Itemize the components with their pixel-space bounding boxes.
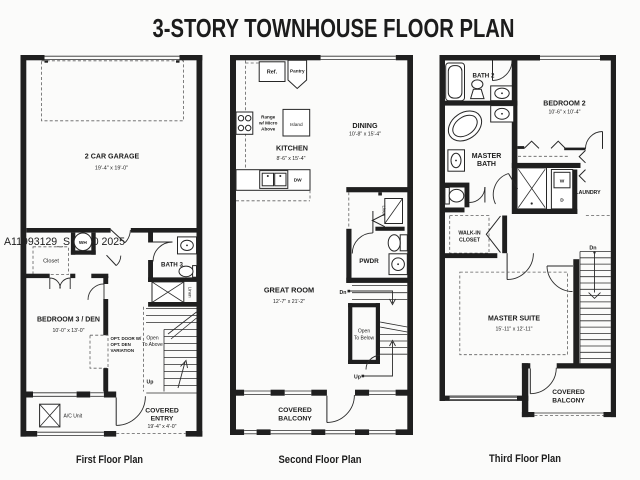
- svg-text:ENTRY: ENTRY: [151, 416, 174, 423]
- svg-text:Above: Above: [261, 127, 275, 132]
- svg-text:GREAT ROOM: GREAT ROOM: [264, 286, 314, 295]
- svg-text:CLOSET: CLOSET: [459, 238, 481, 244]
- svg-text:Open: Open: [358, 329, 370, 335]
- svg-text:KITCHEN: KITCHEN: [276, 144, 308, 153]
- svg-text:W: W: [560, 178, 565, 184]
- svg-text:MASTER: MASTER: [472, 153, 502, 160]
- svg-text:BALCONY: BALCONY: [278, 416, 312, 423]
- svg-text:To Below: To Below: [354, 336, 375, 342]
- svg-text:OPT. DEN: OPT. DEN: [111, 342, 131, 347]
- svg-text:8'-6" x 15'-4": 8'-6" x 15'-4": [276, 156, 305, 162]
- svg-text:12'-7" x 21'-2": 12'-7" x 21'-2": [273, 299, 305, 305]
- svg-text:PWDR: PWDR: [359, 258, 379, 265]
- svg-text:OPT. DOOR W/: OPT. DOOR W/: [111, 336, 143, 341]
- svg-text:VARIATION: VARIATION: [111, 348, 135, 353]
- svg-text:10'-8" x 15'-4": 10'-8" x 15'-4": [349, 132, 381, 138]
- svg-text:A/C Unit: A/C Unit: [64, 414, 83, 420]
- svg-text:First Floor Plan: First Floor Plan: [76, 454, 143, 466]
- svg-text:COVERED: COVERED: [145, 408, 179, 415]
- svg-text:10'-0" x 13'-0": 10'-0" x 13'-0": [53, 328, 85, 334]
- svg-text:BATH 3: BATH 3: [161, 261, 183, 268]
- svg-text:Open: Open: [146, 335, 158, 341]
- svg-text:MASTER SUITE: MASTER SUITE: [488, 315, 540, 322]
- svg-text:To Above: To Above: [142, 342, 163, 348]
- svg-text:BEDROOM 3 / DEN: BEDROOM 3 / DEN: [37, 317, 100, 324]
- svg-text:BEDROOM 2: BEDROOM 2: [543, 101, 586, 108]
- svg-text:Up: Up: [147, 380, 154, 386]
- svg-text:BATH 2: BATH 2: [473, 73, 495, 80]
- svg-text:LAUNDRY: LAUNDRY: [575, 190, 601, 196]
- svg-text:10'-6" x 10'-4": 10'-6" x 10'-4": [549, 110, 581, 116]
- svg-text:DINING: DINING: [352, 121, 378, 130]
- svg-text:BATH: BATH: [477, 161, 496, 168]
- svg-text:D: D: [560, 198, 564, 204]
- svg-text:WH: WH: [79, 240, 88, 246]
- svg-text:Closet: Closet: [43, 258, 59, 264]
- svg-text:Third Floor Plan: Third Floor Plan: [489, 453, 561, 465]
- svg-text:19'-4" x 19'-0": 19'-4" x 19'-0": [95, 166, 128, 172]
- svg-text:Range: Range: [261, 115, 275, 120]
- svg-text:15'-11" x 12'-11": 15'-11" x 12'-11": [496, 327, 533, 333]
- svg-text:Up: Up: [354, 375, 361, 381]
- svg-text:Second Floor Plan: Second Floor Plan: [279, 454, 362, 466]
- svg-text:3-STORY TOWNHOUSE FLOOR PLAN: 3-STORY TOWNHOUSE FLOOR PLAN: [153, 13, 515, 43]
- svg-text:Linen: Linen: [188, 287, 193, 298]
- svg-text:COVERED: COVERED: [552, 389, 585, 396]
- svg-text:Ref.: Ref.: [267, 70, 278, 76]
- svg-text:Dn: Dn: [340, 290, 347, 296]
- svg-text:DW: DW: [294, 178, 302, 184]
- svg-text:2 CAR GARAGE: 2 CAR GARAGE: [85, 153, 140, 161]
- svg-text:Pantry: Pantry: [290, 69, 305, 74]
- svg-text:w/ Micro: w/ Micro: [258, 121, 278, 126]
- svg-text:WALK-IN: WALK-IN: [458, 231, 480, 237]
- svg-text:19'-4" x 4'-0": 19'-4" x 4'-0": [147, 424, 176, 430]
- svg-text:Island: Island: [290, 122, 303, 128]
- svg-text:COVERED: COVERED: [278, 407, 312, 414]
- svg-text:BALCONY: BALCONY: [552, 398, 585, 405]
- svg-text:Dn: Dn: [589, 245, 596, 251]
